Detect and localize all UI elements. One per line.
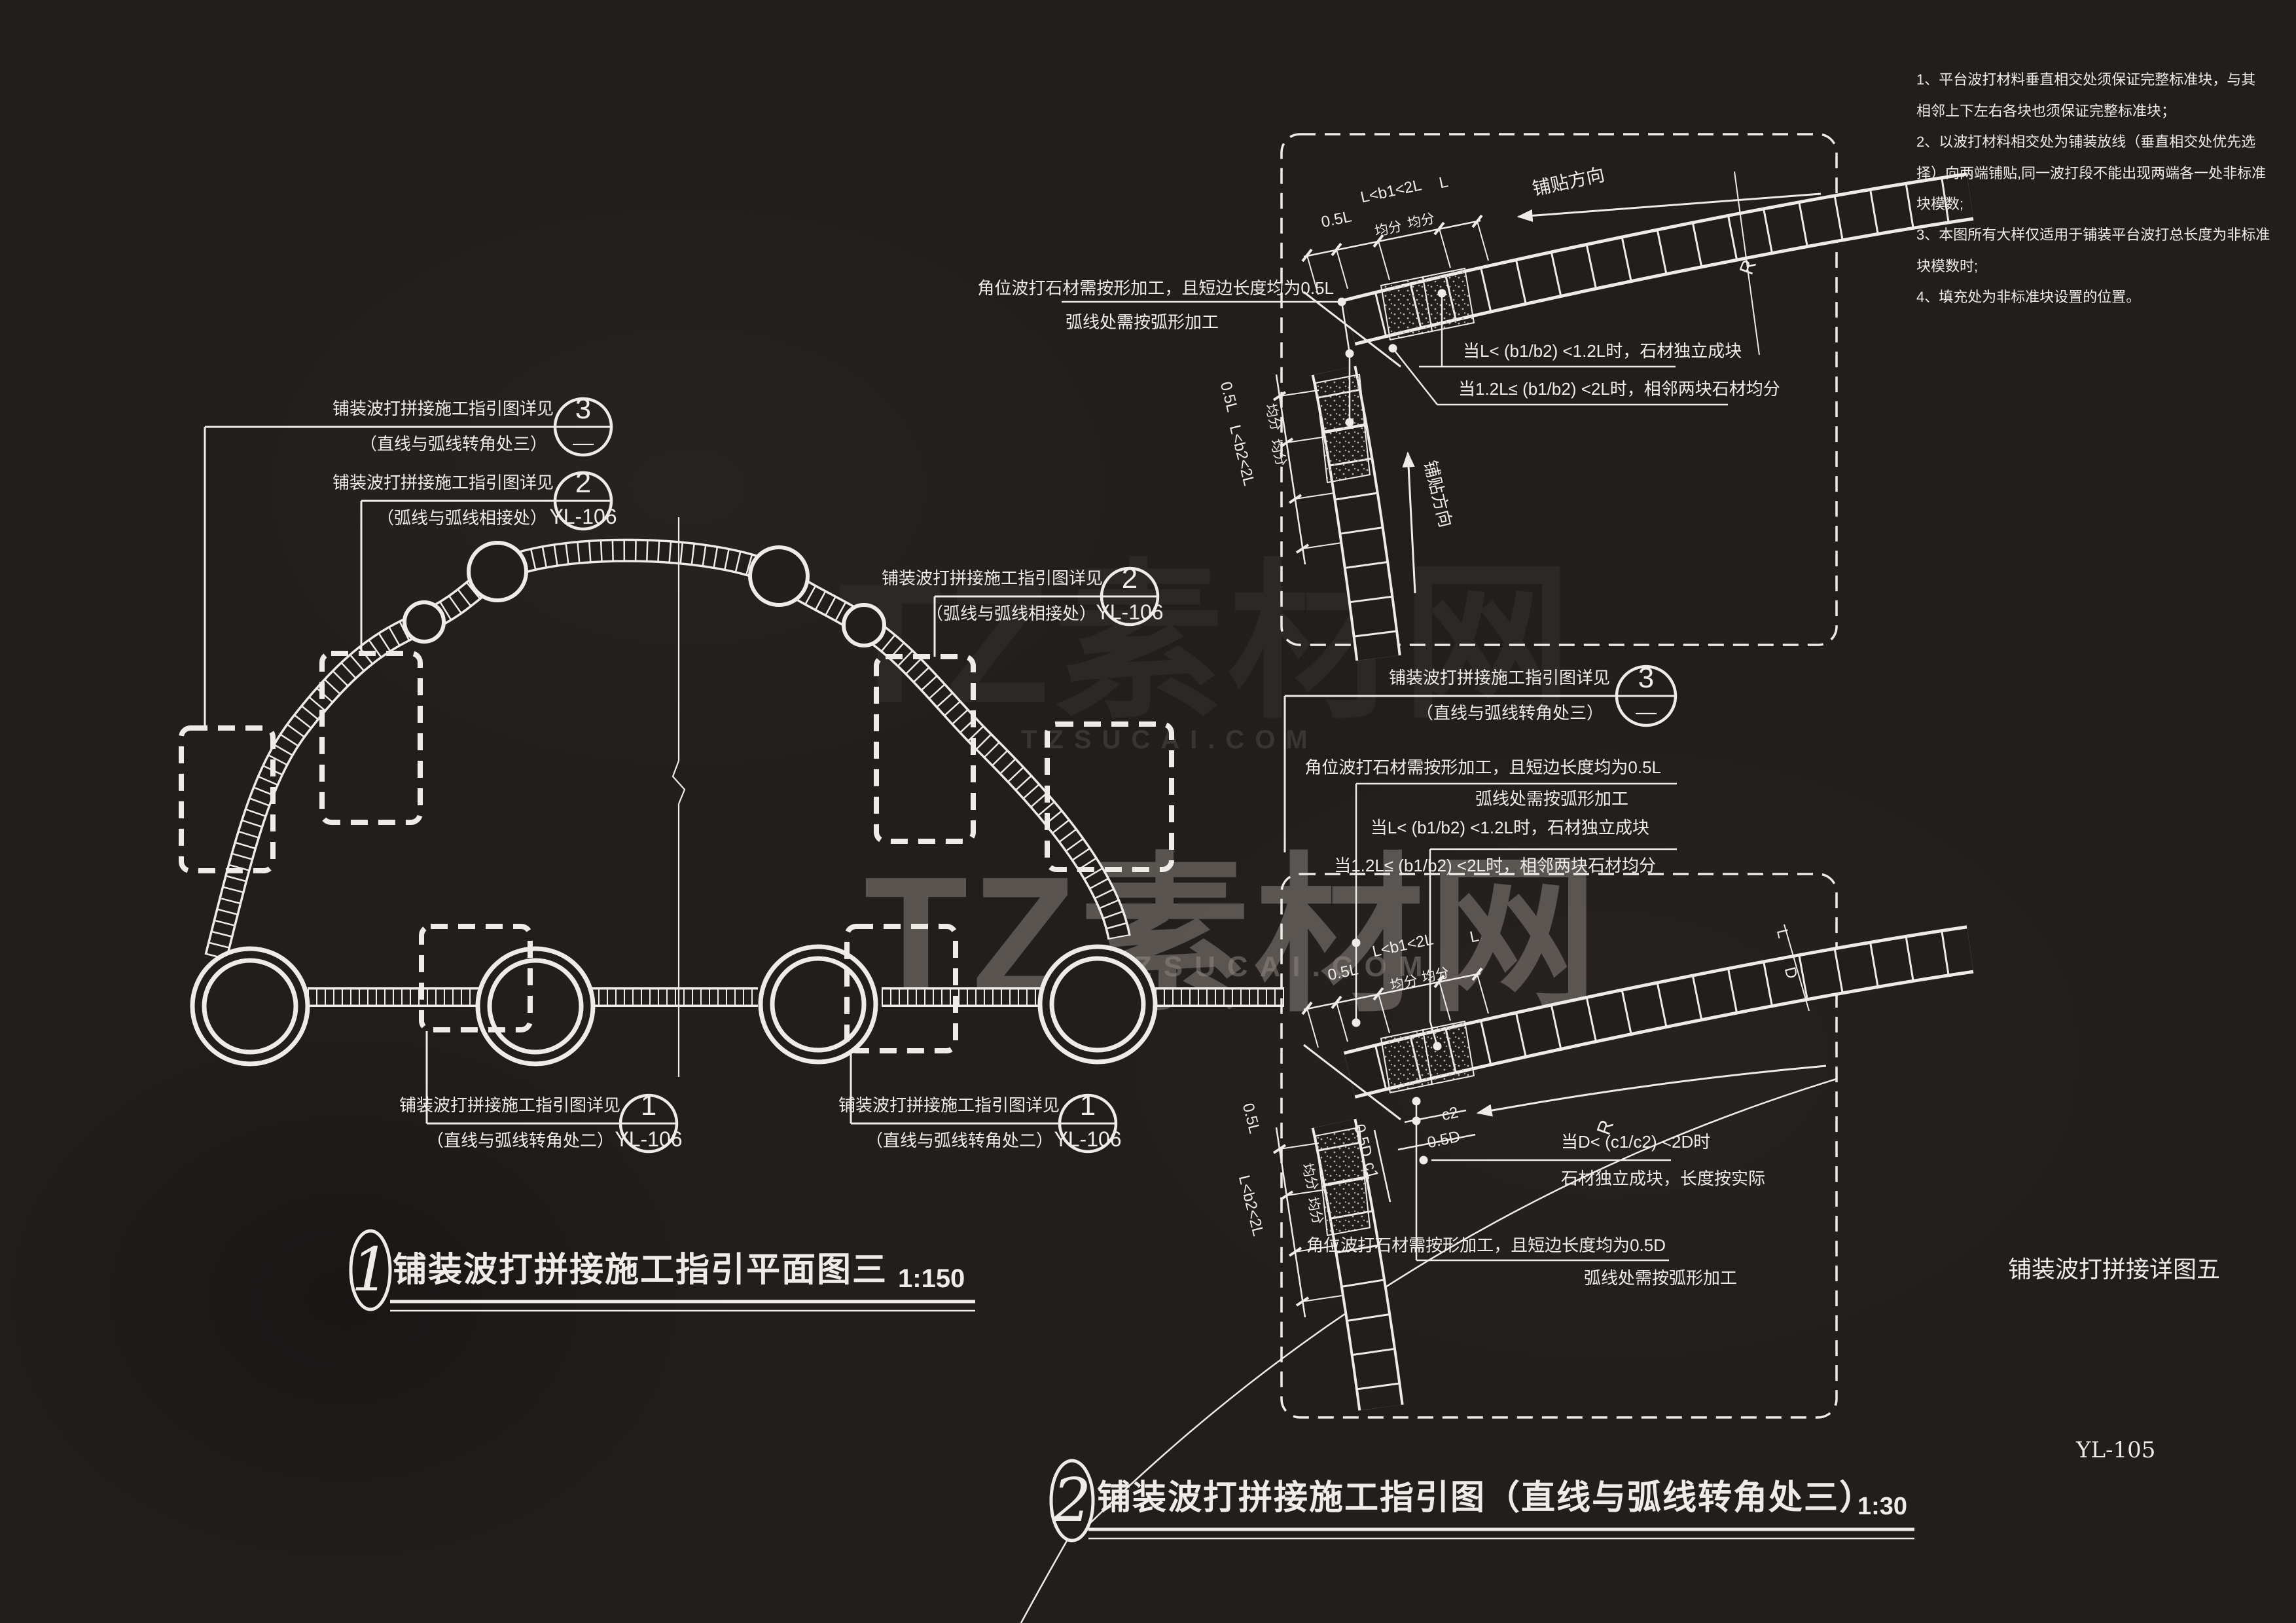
detail-top-corner-note2: 弧线处需按弧形加工 xyxy=(1066,312,1219,333)
note-line: 1、平台波打材料垂直相交处须保证完整标准块，与其 xyxy=(1916,71,2255,89)
callout-e-number: 1 xyxy=(620,1089,677,1122)
callout-a-line2: （直线与弧线转角处三） xyxy=(312,433,547,455)
note-line: 2、以波打材料相交处为铺装放线（垂直相交处优先选 xyxy=(1916,133,2255,151)
callout-b-line1: 铺装波打拼接施工指引图详见 xyxy=(318,472,554,494)
callout-d-line1: 铺装波打拼接施工指引图详见 xyxy=(1374,667,1610,689)
title2-number: 2 xyxy=(1051,1463,1093,1538)
drawing-sheet: TZ素材网 TZSUCAI.COM TZ素材网 TZSUCAI.COM xyxy=(0,0,2296,1623)
callout-b-sheetref: YL-106 xyxy=(544,505,622,529)
footer-detail-name: 铺装波打拼接详图五 xyxy=(2008,1254,2220,1284)
title1-text: 铺装波打拼接施工指引平面图三 xyxy=(393,1249,888,1292)
callout-f-number: 1 xyxy=(1060,1089,1116,1122)
callout-f-sheetref: YL-106 xyxy=(1049,1127,1127,1152)
callout-e-line2: （直线与弧线转角处二） xyxy=(378,1130,614,1152)
detail-bottom-cond3: 当D< (c1/c2) <2D时 xyxy=(1561,1131,1710,1153)
title1-scale: 1:150 xyxy=(898,1262,965,1295)
detail-bottom-cond1: 当L< (b1/b2) <1.2L时，石材独立成块 xyxy=(1283,817,1649,839)
callout-d-line2: （直线与弧线转角处三） xyxy=(1368,702,1604,724)
callout-a-line1: 铺装波打拼接施工指引图详见 xyxy=(318,398,554,420)
paving-direction-arrow xyxy=(1408,453,1415,593)
detail-bottom-arc xyxy=(1088,1079,1837,1525)
detail-bottom-cond2: 当1.2L≤ (b1/b2) <2L时，相邻两块石材均分 xyxy=(1289,855,1656,877)
paving-direction-arrow xyxy=(1478,1066,1826,1113)
callout-a-number: 3 xyxy=(555,393,611,426)
detail-bottom-top-note2: 弧线处需按弧形加工 xyxy=(1262,788,1628,810)
callout-b-number: 2 xyxy=(555,467,611,500)
callout-e-line1: 铺装波打拼接施工指引图详见 xyxy=(385,1095,620,1116)
callout-c-number: 2 xyxy=(1102,562,1158,595)
detail-bottom-cond4: 石材独立成块，长度按实际 xyxy=(1561,1168,1765,1190)
callout-c-sheetref: YL-106 xyxy=(1090,600,1169,625)
detail-top-cond1: 当L< (b1/b2) <1.2L时，石材独立成块 xyxy=(1463,340,1742,362)
callout-a-sheetref: — xyxy=(554,431,613,455)
title1-number: 1 xyxy=(351,1232,390,1307)
callout-c-line1: 铺装波打拼接施工指引图详见 xyxy=(867,568,1103,589)
sheet-number: YL-105 xyxy=(2076,1436,2155,1465)
callout-d-sheetref: — xyxy=(1617,700,1676,724)
detail-bottom-corner-note1: 角位波打石材需按形加工，且短边长度均为0.5D xyxy=(1299,1235,1666,1256)
detail-bottom-corner-note2: 弧线处需按弧形加工 xyxy=(1584,1267,1737,1289)
note-line: 3、本图所有大样仅适用于铺装平台波打总长度为非标准 xyxy=(1916,226,2270,244)
detail-top-cond2: 当1.2L≤ (b1/b2) <2L时，相邻两块石材均分 xyxy=(1458,378,1780,400)
callout-f-line2: （直线与弧线转角处二） xyxy=(817,1130,1053,1152)
callout-b-line2: （弧线与弧线相接处） xyxy=(312,507,547,529)
note-line: 块模数; xyxy=(1916,195,1964,213)
note-line: 相邻上下左右各块也须保证完整标准块； xyxy=(1916,102,2176,120)
note-line: 择）向两端铺贴,同一波打段不能出现两端各一处非标准 xyxy=(1916,164,2266,183)
callout-f-line1: 铺装波打拼接施工指引图详见 xyxy=(824,1095,1060,1116)
callout-c-line2: （弧线与弧线相接处） xyxy=(861,603,1096,625)
callout-e-sheetref: YL-106 xyxy=(609,1127,688,1152)
note-line: 块模数时; xyxy=(1916,257,1978,276)
title2-text: 铺装波打拼接施工指引图（直线与弧线转角处三） xyxy=(1097,1477,1874,1520)
detail-bottom-drawing xyxy=(1088,784,1970,1525)
detail-top-corner-note1: 角位波打石材需按形加工，且短边长度均为0.5L xyxy=(967,278,1334,299)
detail-bottom-top-note1: 角位波打石材需按形加工，且短边长度均为0.5L xyxy=(1295,757,1661,778)
callout-d-number: 3 xyxy=(1618,662,1674,695)
note-line: 4、填充处为非标准块设置的位置。 xyxy=(1916,288,2140,306)
title2-scale: 1:30 xyxy=(1857,1491,1907,1523)
